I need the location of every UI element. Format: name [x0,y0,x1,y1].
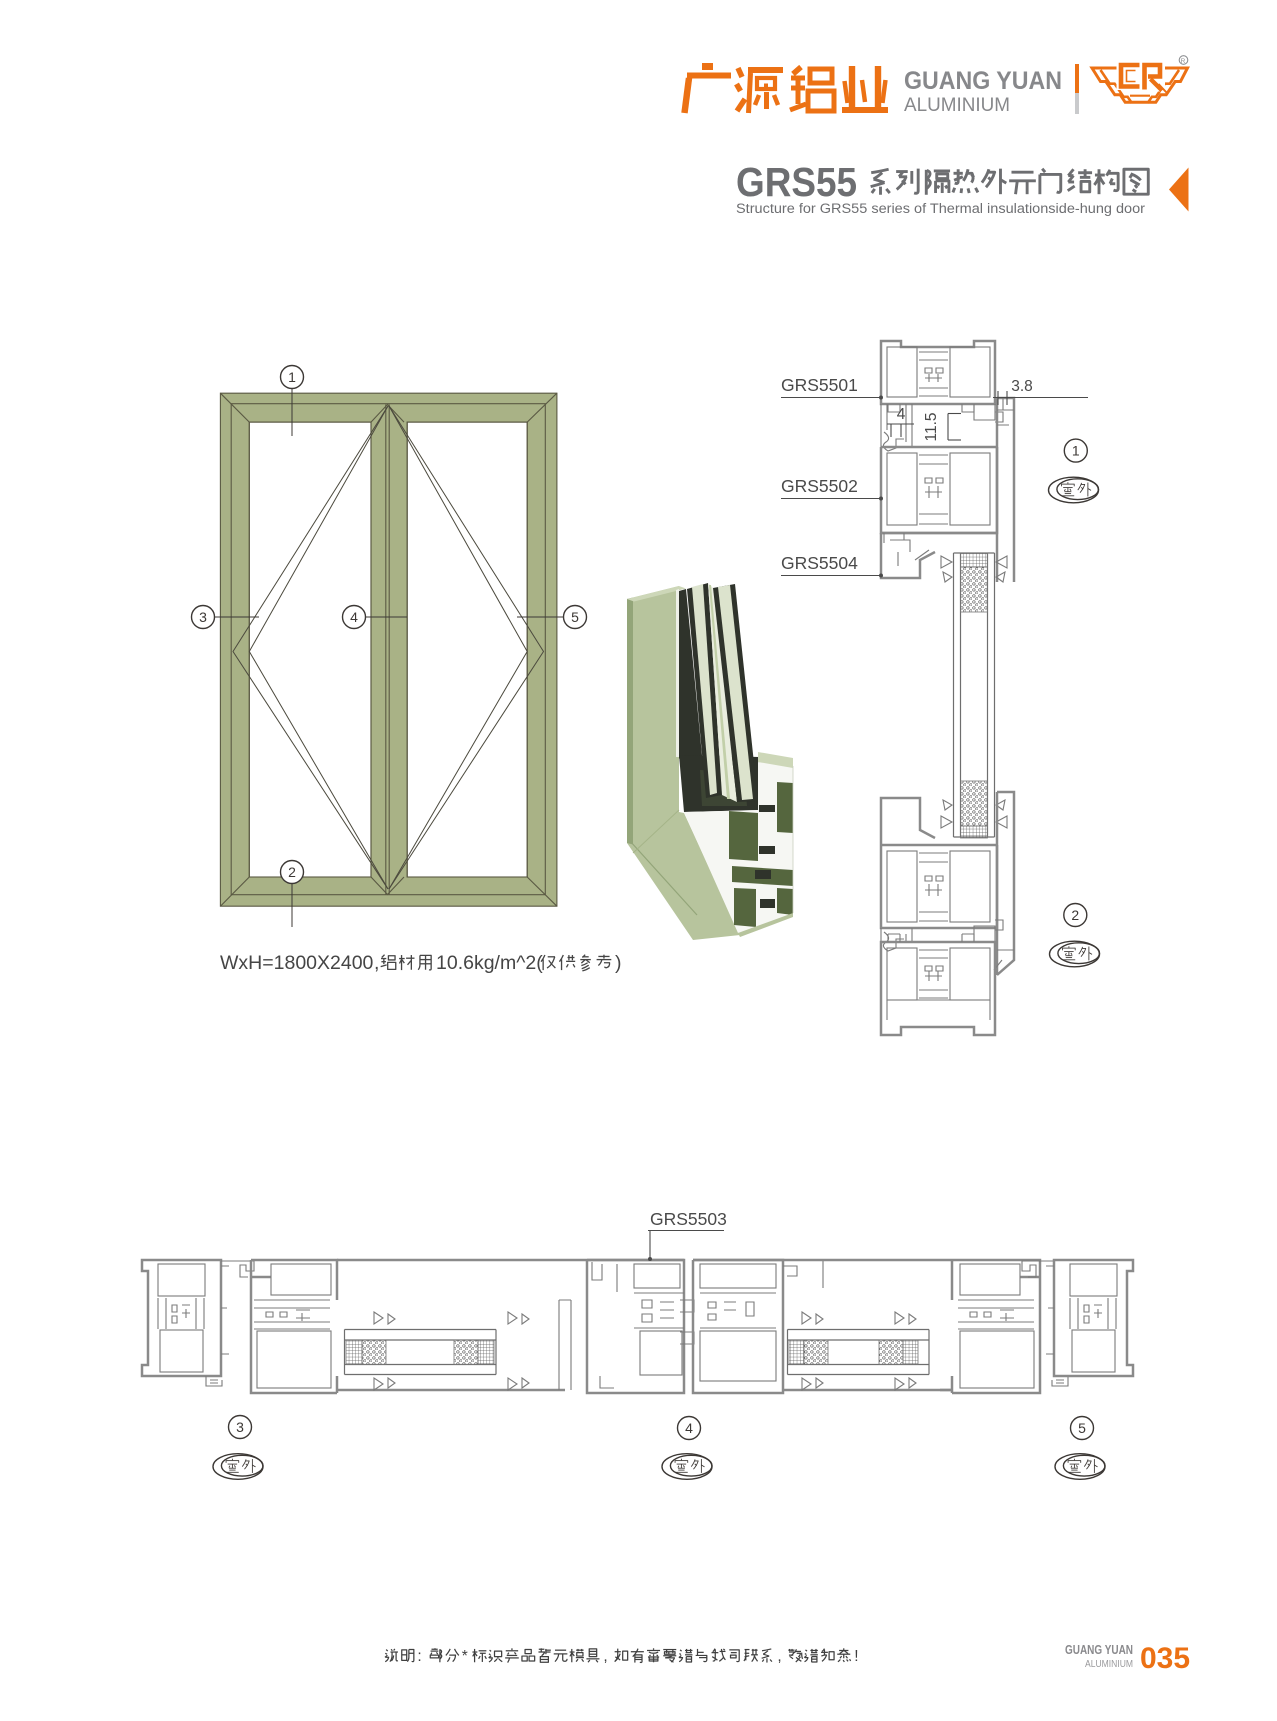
svg-text:,: , [603,1648,607,1665]
svg-text:GRS55: GRS55 [736,159,857,205]
svg-text:Structure for GRS55 series of: Structure for GRS55 series of Thermal in… [736,201,1145,217]
svg-text:GUANG YUAN: GUANG YUAN [904,67,1062,95]
svg-text:1: 1 [1072,443,1080,459]
svg-text:3.8: 3.8 [1011,378,1033,395]
svg-text:,: , [374,952,379,974]
svg-text:11.5: 11.5 [923,412,940,441]
svg-text::: : [417,1648,421,1665]
svg-text:5: 5 [571,609,579,625]
svg-text:R: R [1181,58,1186,65]
svg-text:035: 035 [1140,1642,1190,1675]
svg-text:5: 5 [1078,1420,1086,1436]
svg-text:1: 1 [288,369,296,385]
svg-text:GUANG YUAN: GUANG YUAN [1065,1642,1133,1657]
svg-text:GRS5504: GRS5504 [781,553,858,573]
svg-text:4: 4 [685,1420,693,1436]
svg-text:*: * [462,1648,468,1665]
svg-text:GRS5501: GRS5501 [781,375,858,395]
svg-text:2: 2 [1071,907,1079,923]
svg-text:!: ! [854,1648,858,1665]
svg-text:2: 2 [288,864,296,880]
svg-text:4: 4 [897,406,906,423]
svg-text:GRS5502: GRS5502 [781,476,858,496]
svg-text:): ) [615,952,622,974]
svg-text:ALUMINIUM: ALUMINIUM [1085,1658,1133,1670]
svg-text:ALUMINIUM: ALUMINIUM [904,94,1010,116]
svg-text:,: , [777,1648,781,1665]
svg-text:3: 3 [236,1419,244,1435]
svg-text:4: 4 [350,609,358,625]
svg-text:10.6kg/m^2(: 10.6kg/m^2( [436,952,543,974]
svg-text:WxH=1800X2400: WxH=1800X2400 [220,952,374,974]
svg-text:3: 3 [199,609,207,625]
svg-text:GRS5503: GRS5503 [650,1209,727,1229]
